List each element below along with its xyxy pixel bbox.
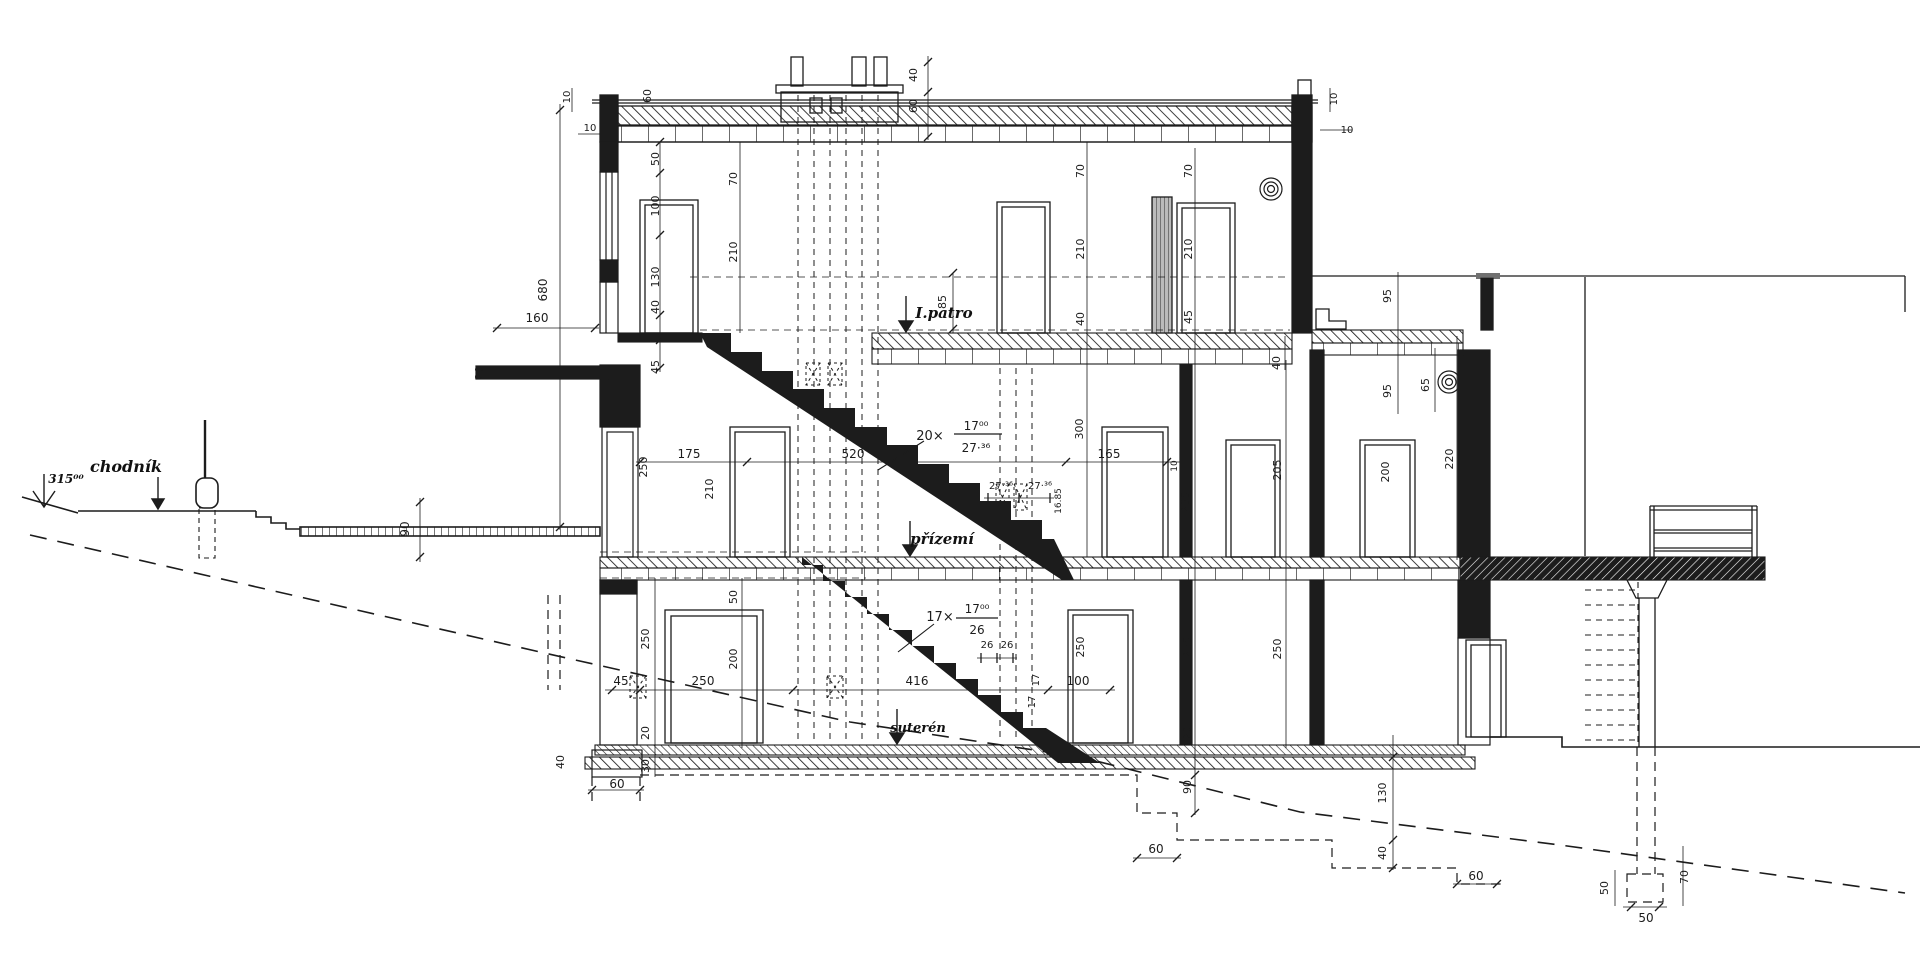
stair-annotation: 17⁰⁰ [965, 602, 990, 616]
dim-label: 50 [1638, 911, 1653, 925]
dim-label: 40 [1376, 846, 1389, 860]
stair-annotation: 26 [969, 623, 984, 637]
dim-label: 17 [1027, 696, 1038, 709]
dim-label: 27·³⁶ [1028, 481, 1052, 492]
dim-label: 40 [554, 755, 567, 769]
dim-label: 45 [613, 674, 628, 688]
dim-label: 50 [727, 590, 740, 604]
stair-annotation: 20× [916, 429, 943, 444]
terrain-dashed-line [30, 535, 1905, 893]
basement-label: suterén [890, 721, 946, 736]
door [1466, 640, 1506, 737]
dim-label: 70 [1182, 164, 1195, 178]
dim-label: 85 [936, 295, 949, 309]
dim-label: 165 [1098, 447, 1121, 461]
dim-label: 300 [1073, 419, 1086, 440]
dim-label: 45 [1182, 310, 1195, 324]
grade-right [1490, 737, 1920, 747]
dim-label: 230 [1179, 492, 1192, 513]
dim-label: 10 [562, 91, 573, 104]
dim-label: 250 [637, 457, 650, 478]
dim-label: 26 [981, 640, 994, 651]
open-door-leaf [1152, 197, 1172, 333]
dim-label: 250 [639, 629, 652, 650]
dim-label: 10 [1170, 460, 1180, 472]
flue-x-box [827, 676, 843, 698]
vent-pipe-right [1298, 80, 1311, 96]
dim-label: 100 [649, 196, 662, 217]
dim-label: 60 [1468, 869, 1483, 883]
doors [640, 197, 1506, 743]
door [997, 202, 1050, 333]
dim-label: 205 [1271, 460, 1284, 481]
architectural-section-page: chodník315⁰⁰I.patropřízemísuterén20×17⁰⁰… [0, 0, 1920, 956]
dim-label: 27·³⁶ [989, 481, 1013, 492]
hidden-exterior-stair [1585, 582, 1638, 745]
dim-label: 20 [639, 726, 652, 740]
dim-label: 30 [639, 759, 652, 773]
dim-label: 680 [536, 279, 550, 302]
stair-annotation: 17× [926, 610, 953, 625]
dim-label: 17 [1031, 674, 1042, 687]
roof-ceiling-tiles [618, 126, 1292, 142]
dim-label: 200 [1379, 462, 1392, 483]
dim-label: 26 [1001, 640, 1014, 651]
dim-label: 95 [1381, 289, 1394, 303]
dim-label: 70 [727, 172, 740, 186]
dim-label: 160 [526, 311, 549, 325]
dim-label: 250 [1074, 637, 1087, 658]
door [1360, 440, 1415, 557]
stair-annotation: 17⁰⁰ [964, 419, 989, 433]
door [730, 427, 790, 557]
entrance-canopy [476, 366, 608, 379]
post-foundation-hidden [199, 508, 215, 558]
section-drawing: chodník315⁰⁰I.patropřízemísuterén20×17⁰⁰… [0, 0, 1920, 956]
dim-label: 50 [1598, 881, 1611, 895]
entry-walkway [300, 527, 600, 536]
entry-steps [256, 511, 300, 529]
dim-label: 40 [1270, 356, 1283, 370]
lower-stair-flight [802, 557, 1100, 763]
dim-label: 20 [1181, 726, 1194, 740]
terrace-parapet [1481, 278, 1493, 330]
dim-label: 10 [1341, 125, 1354, 136]
dim-label: 210 [703, 479, 716, 500]
dim-label: 60 [907, 99, 920, 113]
dim-label: 16.85 [1054, 488, 1064, 514]
dim-label: 90 [1181, 780, 1194, 794]
dim-label: 175 [678, 447, 701, 461]
floor-slabs [585, 330, 1765, 769]
foundation-steps [640, 775, 1500, 884]
dim-label: 45 [649, 360, 662, 374]
elevation-label: 315⁰⁰ [48, 472, 84, 486]
dim-label: 60 [609, 777, 624, 791]
dim-label: 416 [906, 674, 929, 688]
dim-label: 210 [1074, 239, 1087, 260]
dim-label: 130 [1376, 783, 1389, 804]
roof-parapet-left [600, 95, 618, 142]
dim-label: 20 [473, 366, 486, 380]
upper-stair-flight [700, 333, 1074, 580]
dim-label: 70 [1074, 164, 1087, 178]
dim-label: 250 [1271, 639, 1284, 660]
dim-label: 65 [1419, 378, 1432, 392]
dim-label: 10 [1329, 93, 1340, 106]
dim-label: 60 [641, 89, 654, 103]
post-base [196, 478, 218, 508]
dim-label: 220 [1443, 449, 1456, 470]
sidewalk-label: chodník [90, 457, 162, 476]
ground-floor-label: přízemí [910, 530, 975, 548]
stair-annotation: 27·³⁶ [962, 441, 991, 455]
dim-label: 60 [1148, 842, 1163, 856]
flue-x-box [806, 363, 820, 385]
dim-label: 520 [842, 447, 865, 461]
dim-label: 250 [1181, 637, 1194, 658]
dim-label: 40 [907, 68, 920, 82]
dim-label: 210 [1182, 239, 1195, 260]
door [1226, 440, 1280, 557]
dim-label: 90 [398, 521, 412, 536]
dim-label: 250 [692, 674, 715, 688]
dim-label: 40 [1074, 312, 1087, 326]
parapet-coping [1316, 309, 1346, 329]
terrace-slab [1460, 557, 1765, 580]
bench-railing [1650, 506, 1757, 557]
roof-slab-hatch [618, 106, 1292, 125]
dim-label: 200 [727, 649, 740, 670]
roof-drain-icon [1260, 178, 1282, 200]
dim-label: 95 [1381, 384, 1394, 398]
dim-label: 130 [649, 267, 662, 288]
dim-label: 210 [727, 242, 740, 263]
down-arrow-icon [899, 296, 913, 332]
dim-label: 40 [649, 300, 662, 314]
dim-label: 10 [584, 123, 597, 134]
down-arrow-icon [152, 477, 164, 509]
dim-label: 70 [1678, 870, 1691, 884]
dim-label: 50 [649, 152, 662, 166]
dim-label: 100 [1067, 674, 1090, 688]
flue-x-box [1014, 484, 1027, 510]
stairs [700, 333, 1100, 763]
